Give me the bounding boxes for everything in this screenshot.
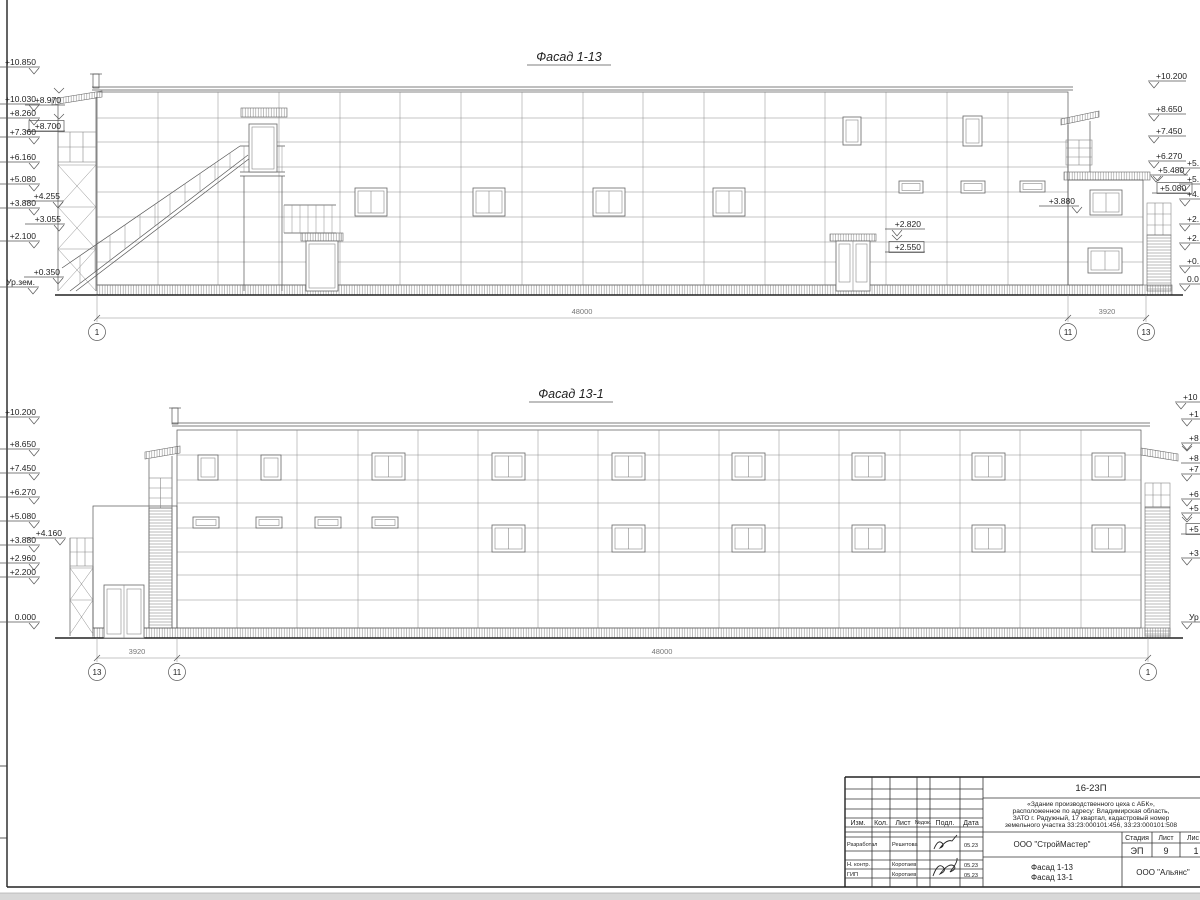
panel-grid-vertical [158,92,1008,285]
sheets-total: 1 [1193,846,1198,856]
dimension-label: 3920 [129,647,146,656]
elevation-mark: +2.550 [885,235,925,253]
svg-text:+10.200: +10.200 [5,407,36,417]
svg-text:+2.: +2. [1187,214,1199,224]
svg-text:Ур.зем.: Ур.зем. [6,277,35,287]
svg-text:+3.880: +3.880 [1049,196,1076,206]
signature-role: Разработал [847,842,877,848]
svg-text:+4.255: +4.255 [34,191,61,201]
elevation-mark: +3 [1181,548,1200,565]
drawing-sheet: Фасад 1-13 [0,0,1200,900]
svg-text:+7.450: +7.450 [1156,126,1183,136]
column-header-izm: Изм. [851,820,866,827]
stage-value: ЭП [1131,846,1144,856]
elevation-mark: +3.880 [0,198,40,215]
external-staircase [62,146,336,291]
svg-text:+4.: +4. [1187,189,1199,199]
svg-text:+5: +5 [1189,503,1199,513]
vent-row [899,181,1045,193]
signature-name: Решетова [892,842,919,848]
axis-bubble-label: 1 [1146,668,1151,677]
elevation-mark: +10.850 [0,57,40,74]
sheet-number: 9 [1163,846,1168,856]
elevation-mark: +5.080 [0,174,40,191]
svg-text:+2.200: +2.200 [10,567,37,577]
elevation-mark: +6.160 [0,152,40,169]
project-description-line: земельного участка 33:23:000101:456, 33:… [1005,822,1178,829]
svg-text:+2.550: +2.550 [895,242,922,252]
elevation-mark: 0.000 [0,612,40,629]
elevation-mark: +5 [1181,517,1200,535]
viewer-bottom-bar [0,893,1200,900]
elevation-mark: +7.450 [0,463,40,480]
dimension-label: 48000 [572,307,593,316]
project-description-line: расположенное по адресу: Владимирская об… [1013,807,1170,815]
axis-bubbles: 1 11 13 [89,324,1155,341]
signature-date: 05.23 [964,863,978,869]
left-annex [93,446,180,638]
elevation-mark: +2.200 [0,567,40,584]
elevation-mark: +2.100 [0,231,40,248]
axis-bubble-label: 11 [1064,328,1073,337]
axis-bubble-label: 13 [1142,328,1151,337]
elevation-mark: Ур [1181,612,1200,629]
svg-text:+4.160: +4.160 [36,528,63,538]
elevation-mark: +10.200 [0,407,40,424]
elevation-mark: +2. [1179,214,1200,231]
axis-bubbles: 13 11 1 [89,664,1157,681]
svg-text:+10.200: +10.200 [1156,71,1187,81]
elevation-mark: +1 [1181,409,1200,426]
column-header-kol: Кол. [874,820,888,827]
svg-text:+1: +1 [1189,409,1199,419]
dimension-line: 48000 3920 [94,295,1149,322]
svg-text:+2.100: +2.100 [10,231,37,241]
elevation-mark: +7.450 [1148,126,1186,143]
signature-date: 05.23 [964,873,978,879]
project-description-line: ЗАТО г. Радужный, 17 квартал, кадастровы… [1013,814,1170,822]
column-header-ndok: №док. [915,820,932,826]
elevation-mark: 0.0 [1179,274,1200,291]
axis-bubble-label: 1 [95,328,100,337]
signature-name: Коротаев [892,862,916,868]
elevation-mark: +10.200 [1148,71,1187,88]
elevation-mark: +3.880 [0,535,40,552]
svg-text:Ур: Ур [1189,612,1199,622]
svg-text:+5.: +5. [1187,158,1199,168]
svg-text:+5.080: +5.080 [10,174,37,184]
column-header-data: Дата [963,820,979,827]
design-org: ООО "СтройМастер" [1013,840,1090,849]
svg-text:+8.260: +8.260 [10,108,37,118]
signature-scribble [933,858,957,876]
elevation-mark: +5.080 [1152,176,1192,194]
drawing-name-1: Фасад 1-13 [1031,863,1073,872]
axis-bubble-label: 13 [93,668,102,677]
right-ladder [1147,203,1171,291]
svg-text:+5.: +5. [1187,174,1199,184]
entrance-door-1 [301,233,343,291]
elevation-mark: +6.270 [0,487,40,504]
svg-text:+8.650: +8.650 [1156,104,1183,114]
svg-text:+10.030: +10.030 [5,94,36,104]
svg-text:+5.080: +5.080 [10,511,37,521]
upper-small-windows [843,116,982,146]
sheets-label: Лис [1187,835,1200,842]
dimension-label: 48000 [652,647,673,656]
elevation-mark: +0. [1179,256,1200,273]
sheet-label: Лист [1158,835,1174,842]
signature-role: Н. контр. [847,862,871,868]
svg-text:+10.850: +10.850 [5,57,36,67]
signature-name: Коротаев [892,872,916,878]
elevation-mark: +7.360 [0,127,40,144]
axis-bubble-label: 11 [173,668,182,677]
column-header-podl: Подл. [936,820,955,827]
svg-text:+2.: +2. [1187,233,1199,243]
svg-text:+0.350: +0.350 [34,267,61,277]
plinth-band [93,628,1170,638]
title-block: 16-23П «Здание производственного цеха с … [845,777,1200,887]
elevation-mark: +7 [1181,464,1200,481]
panel-grid-vertical [237,430,1081,628]
svg-text:+10: +10 [1183,392,1198,402]
elevation-mark: +10 [1175,392,1200,409]
elevation-mark: +2.820 [885,219,925,236]
dimension-line: 3920 48000 [94,638,1151,662]
project-description-line: «Здание производственного цеха с АБК», [1027,801,1155,808]
plinth-band [97,285,1172,295]
elevation-mark: +3.055 [25,214,65,231]
upper-landing-door [241,108,287,172]
elevation-mark: +8.650 [1148,104,1186,121]
elevation-mark: +5.480 [1150,165,1188,182]
drawing-name-2: Фасад 13-1 [1031,873,1073,882]
upper-window-row [198,453,1125,480]
svg-text:+8.700: +8.700 [35,121,62,131]
elevation-mark: Ур.зем. [0,277,39,294]
facade-13-1: Фасад 13-1 [0,387,1200,681]
svg-text:+3.055: +3.055 [35,214,62,224]
svg-text:+8: +8 [1189,433,1199,443]
svg-text:+6: +6 [1189,489,1199,499]
elevation-mark: +3.880 [1039,196,1082,213]
elevation-mark: +8 [1181,446,1200,463]
svg-text:0.000: 0.000 [15,612,37,622]
right-ladder [1141,448,1178,636]
elevation-mark: +2. [1179,233,1200,250]
facade-title: Фасад 13-1 [538,387,604,401]
project-code: 16-23П [1075,783,1106,794]
column-header-list: Лист [895,820,911,827]
svg-text:0.0: 0.0 [1187,274,1199,284]
svg-text:+3.880: +3.880 [10,198,37,208]
svg-text:+8: +8 [1189,453,1199,463]
svg-text:+7.360: +7.360 [10,127,37,137]
elevation-mark: +5.080 [0,511,40,528]
entrance-door-2 [830,234,876,291]
svg-text:+6.270: +6.270 [10,487,37,497]
facade-title: Фасад 1-13 [536,50,602,64]
svg-text:+7.450: +7.450 [10,463,37,473]
facade-1-13: Фасад 1-13 [0,50,1200,341]
svg-text:+5: +5 [1189,524,1199,534]
client-org: ООО "Альянс" [1136,868,1190,877]
drawing-canvas: Фасад 1-13 [0,0,1200,900]
signature-role: ГИП [847,872,858,878]
svg-text:+8.650: +8.650 [10,439,37,449]
elevation-mark: +8.650 [0,439,40,456]
stage-label: Стадия [1125,835,1149,842]
left-stair-tower [70,538,93,636]
elevation-mark: +5 [1181,503,1200,520]
svg-text:+6.160: +6.160 [10,152,37,162]
svg-text:+7: +7 [1189,464,1199,474]
svg-text:+2.960: +2.960 [10,553,37,563]
svg-text:+0.: +0. [1187,256,1199,266]
svg-text:+6.270: +6.270 [1156,151,1183,161]
svg-text:+8.970: +8.970 [35,95,62,105]
svg-text:+3: +3 [1189,548,1199,558]
svg-text:+3.880: +3.880 [10,535,37,545]
dimension-label: 3920 [1099,307,1116,316]
svg-text:+2.820: +2.820 [895,219,922,229]
signature-date: 05.23 [964,843,978,849]
